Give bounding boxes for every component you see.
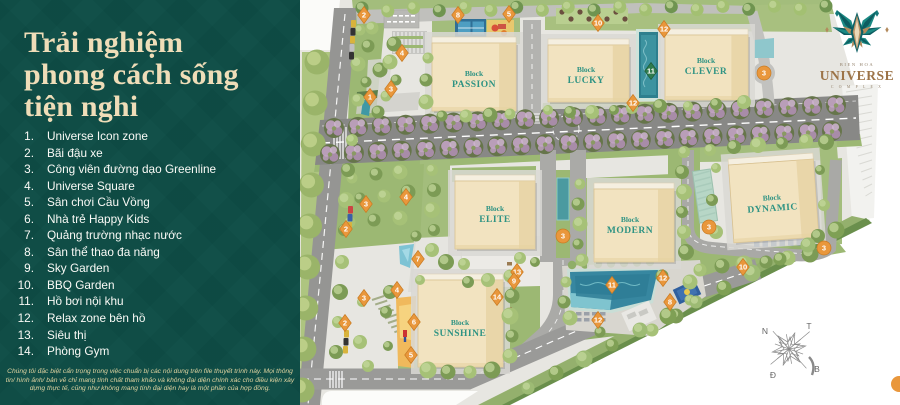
svg-text:10: 10 — [594, 19, 602, 28]
svg-text:PASSION: PASSION — [452, 80, 496, 90]
svg-text:B: B — [814, 364, 820, 374]
svg-text:BIEN HOA: BIEN HOA — [840, 62, 875, 67]
svg-text:3: 3 — [561, 232, 565, 241]
svg-text:8: 8 — [668, 298, 672, 307]
svg-text:2: 2 — [343, 319, 347, 328]
svg-text:3: 3 — [707, 223, 711, 232]
svg-text:12: 12 — [659, 274, 667, 283]
svg-text:3: 3 — [389, 85, 393, 94]
svg-text:3: 3 — [364, 200, 368, 209]
svg-text:SUNSHINE: SUNSHINE — [434, 329, 487, 339]
svg-text:2: 2 — [362, 11, 366, 20]
svg-text:5: 5 — [409, 351, 413, 360]
svg-text:3: 3 — [822, 244, 826, 253]
svg-text:C O M P L E X: C O M P L E X — [831, 85, 883, 89]
svg-text:Block: Block — [697, 56, 716, 65]
svg-text:Đ: Đ — [770, 370, 776, 380]
svg-text:3: 3 — [762, 69, 766, 78]
svg-text:Block: Block — [465, 69, 484, 78]
svg-text:Block: Block — [762, 192, 782, 202]
svg-text:11: 11 — [647, 67, 655, 76]
svg-text:3: 3 — [362, 294, 366, 303]
svg-text:14: 14 — [493, 293, 502, 302]
svg-text:Block: Block — [577, 65, 596, 74]
svg-text:12: 12 — [629, 99, 637, 108]
svg-text:1: 1 — [368, 93, 372, 102]
svg-text:LUCKY: LUCKY — [568, 76, 605, 86]
svg-text:UNIVERSE: UNIVERSE — [820, 68, 895, 83]
svg-text:7: 7 — [416, 255, 420, 264]
svg-text:5: 5 — [507, 10, 511, 19]
svg-text:12: 12 — [594, 316, 602, 325]
svg-text:12: 12 — [660, 25, 668, 34]
svg-text:2: 2 — [344, 225, 348, 234]
svg-text:8: 8 — [456, 11, 460, 20]
svg-text:N: N — [762, 326, 768, 336]
svg-text:11: 11 — [608, 281, 616, 290]
svg-text:9: 9 — [512, 277, 516, 286]
svg-text:CLEVER: CLEVER — [685, 67, 728, 77]
svg-text:ELITE: ELITE — [479, 215, 511, 225]
svg-text:T: T — [806, 321, 811, 331]
svg-text:Block: Block — [621, 215, 640, 224]
svg-text:MODERN: MODERN — [607, 226, 653, 236]
svg-text:Block: Block — [486, 204, 505, 213]
svg-text:6: 6 — [412, 318, 416, 327]
svg-text:Block: Block — [451, 318, 470, 327]
svg-text:10: 10 — [739, 263, 747, 272]
